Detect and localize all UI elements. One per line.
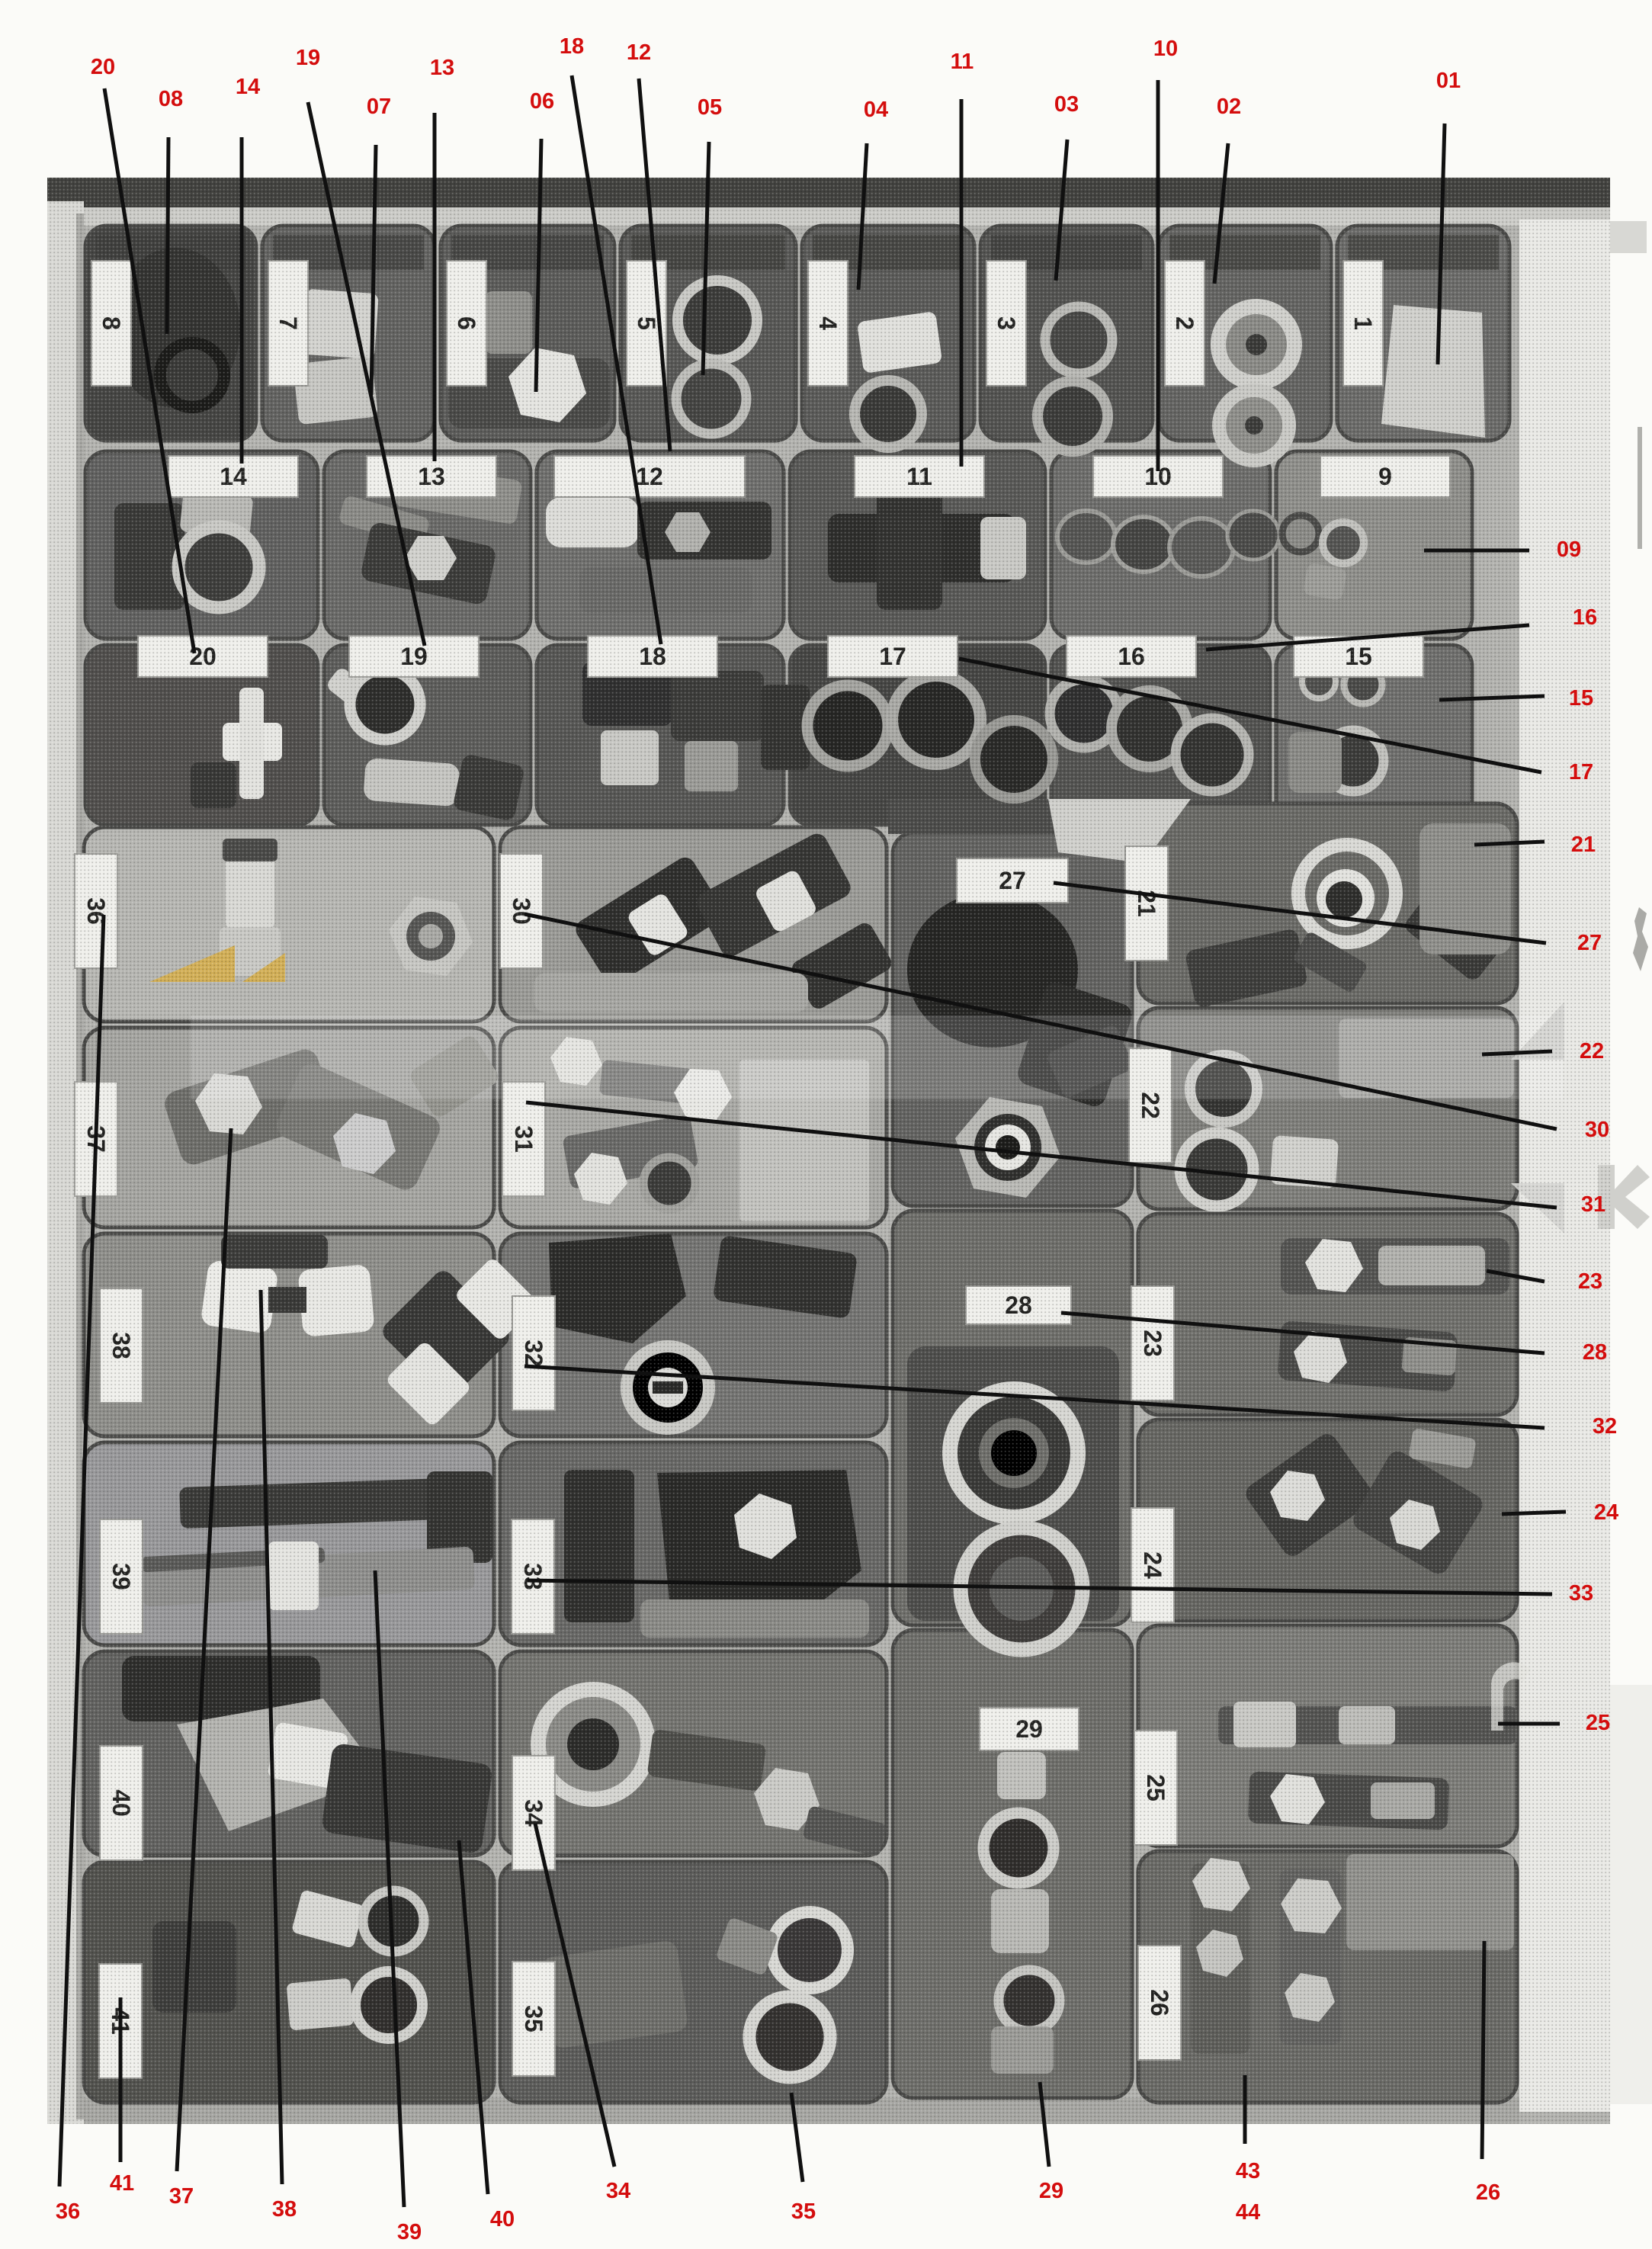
svg-text:18: 18 [560, 34, 584, 59]
svg-text:26: 26 [1476, 2180, 1500, 2205]
svg-text:07: 07 [367, 95, 391, 119]
svg-text:41: 41 [110, 2171, 134, 2196]
svg-text:19: 19 [296, 46, 320, 70]
svg-text:13: 13 [430, 56, 454, 80]
svg-text:06: 06 [530, 89, 554, 114]
svg-text:14: 14 [236, 75, 260, 99]
svg-text:29: 29 [1039, 2179, 1063, 2203]
svg-text:27: 27 [1577, 931, 1602, 955]
svg-text:23: 23 [1578, 1269, 1602, 1294]
svg-text:16: 16 [1573, 605, 1597, 630]
svg-text:25: 25 [1586, 1711, 1610, 1735]
svg-text:05: 05 [698, 95, 722, 120]
svg-text:11: 11 [951, 50, 974, 74]
svg-text:32: 32 [1593, 1414, 1617, 1439]
svg-text:30: 30 [1585, 1118, 1609, 1142]
svg-text:08: 08 [159, 87, 183, 111]
svg-text:12: 12 [627, 40, 651, 65]
svg-text:15: 15 [1569, 686, 1593, 711]
svg-text:31: 31 [1581, 1192, 1605, 1217]
svg-text:03: 03 [1054, 92, 1079, 117]
svg-text:21: 21 [1571, 833, 1596, 857]
svg-text:43: 43 [1236, 2159, 1260, 2183]
svg-text:37: 37 [169, 2184, 194, 2209]
svg-text:44: 44 [1236, 2200, 1260, 2225]
svg-text:33: 33 [1569, 1581, 1593, 1606]
svg-text:04: 04 [864, 98, 888, 122]
svg-text:36: 36 [56, 2199, 80, 2224]
svg-text:38: 38 [272, 2197, 297, 2222]
svg-text:17: 17 [1569, 760, 1593, 784]
svg-text:40: 40 [490, 2207, 515, 2231]
svg-text:22: 22 [1580, 1039, 1604, 1064]
svg-text:28: 28 [1583, 1340, 1607, 1365]
svg-text:24: 24 [1594, 1500, 1618, 1525]
svg-text:39: 39 [397, 2220, 422, 2244]
svg-text:35: 35 [791, 2199, 816, 2224]
svg-text:01: 01 [1436, 69, 1461, 93]
svg-text:09: 09 [1557, 537, 1581, 562]
svg-text:02: 02 [1217, 95, 1241, 119]
svg-text:20: 20 [91, 55, 115, 79]
svg-text:34: 34 [606, 2179, 630, 2203]
svg-text:10: 10 [1153, 37, 1178, 61]
